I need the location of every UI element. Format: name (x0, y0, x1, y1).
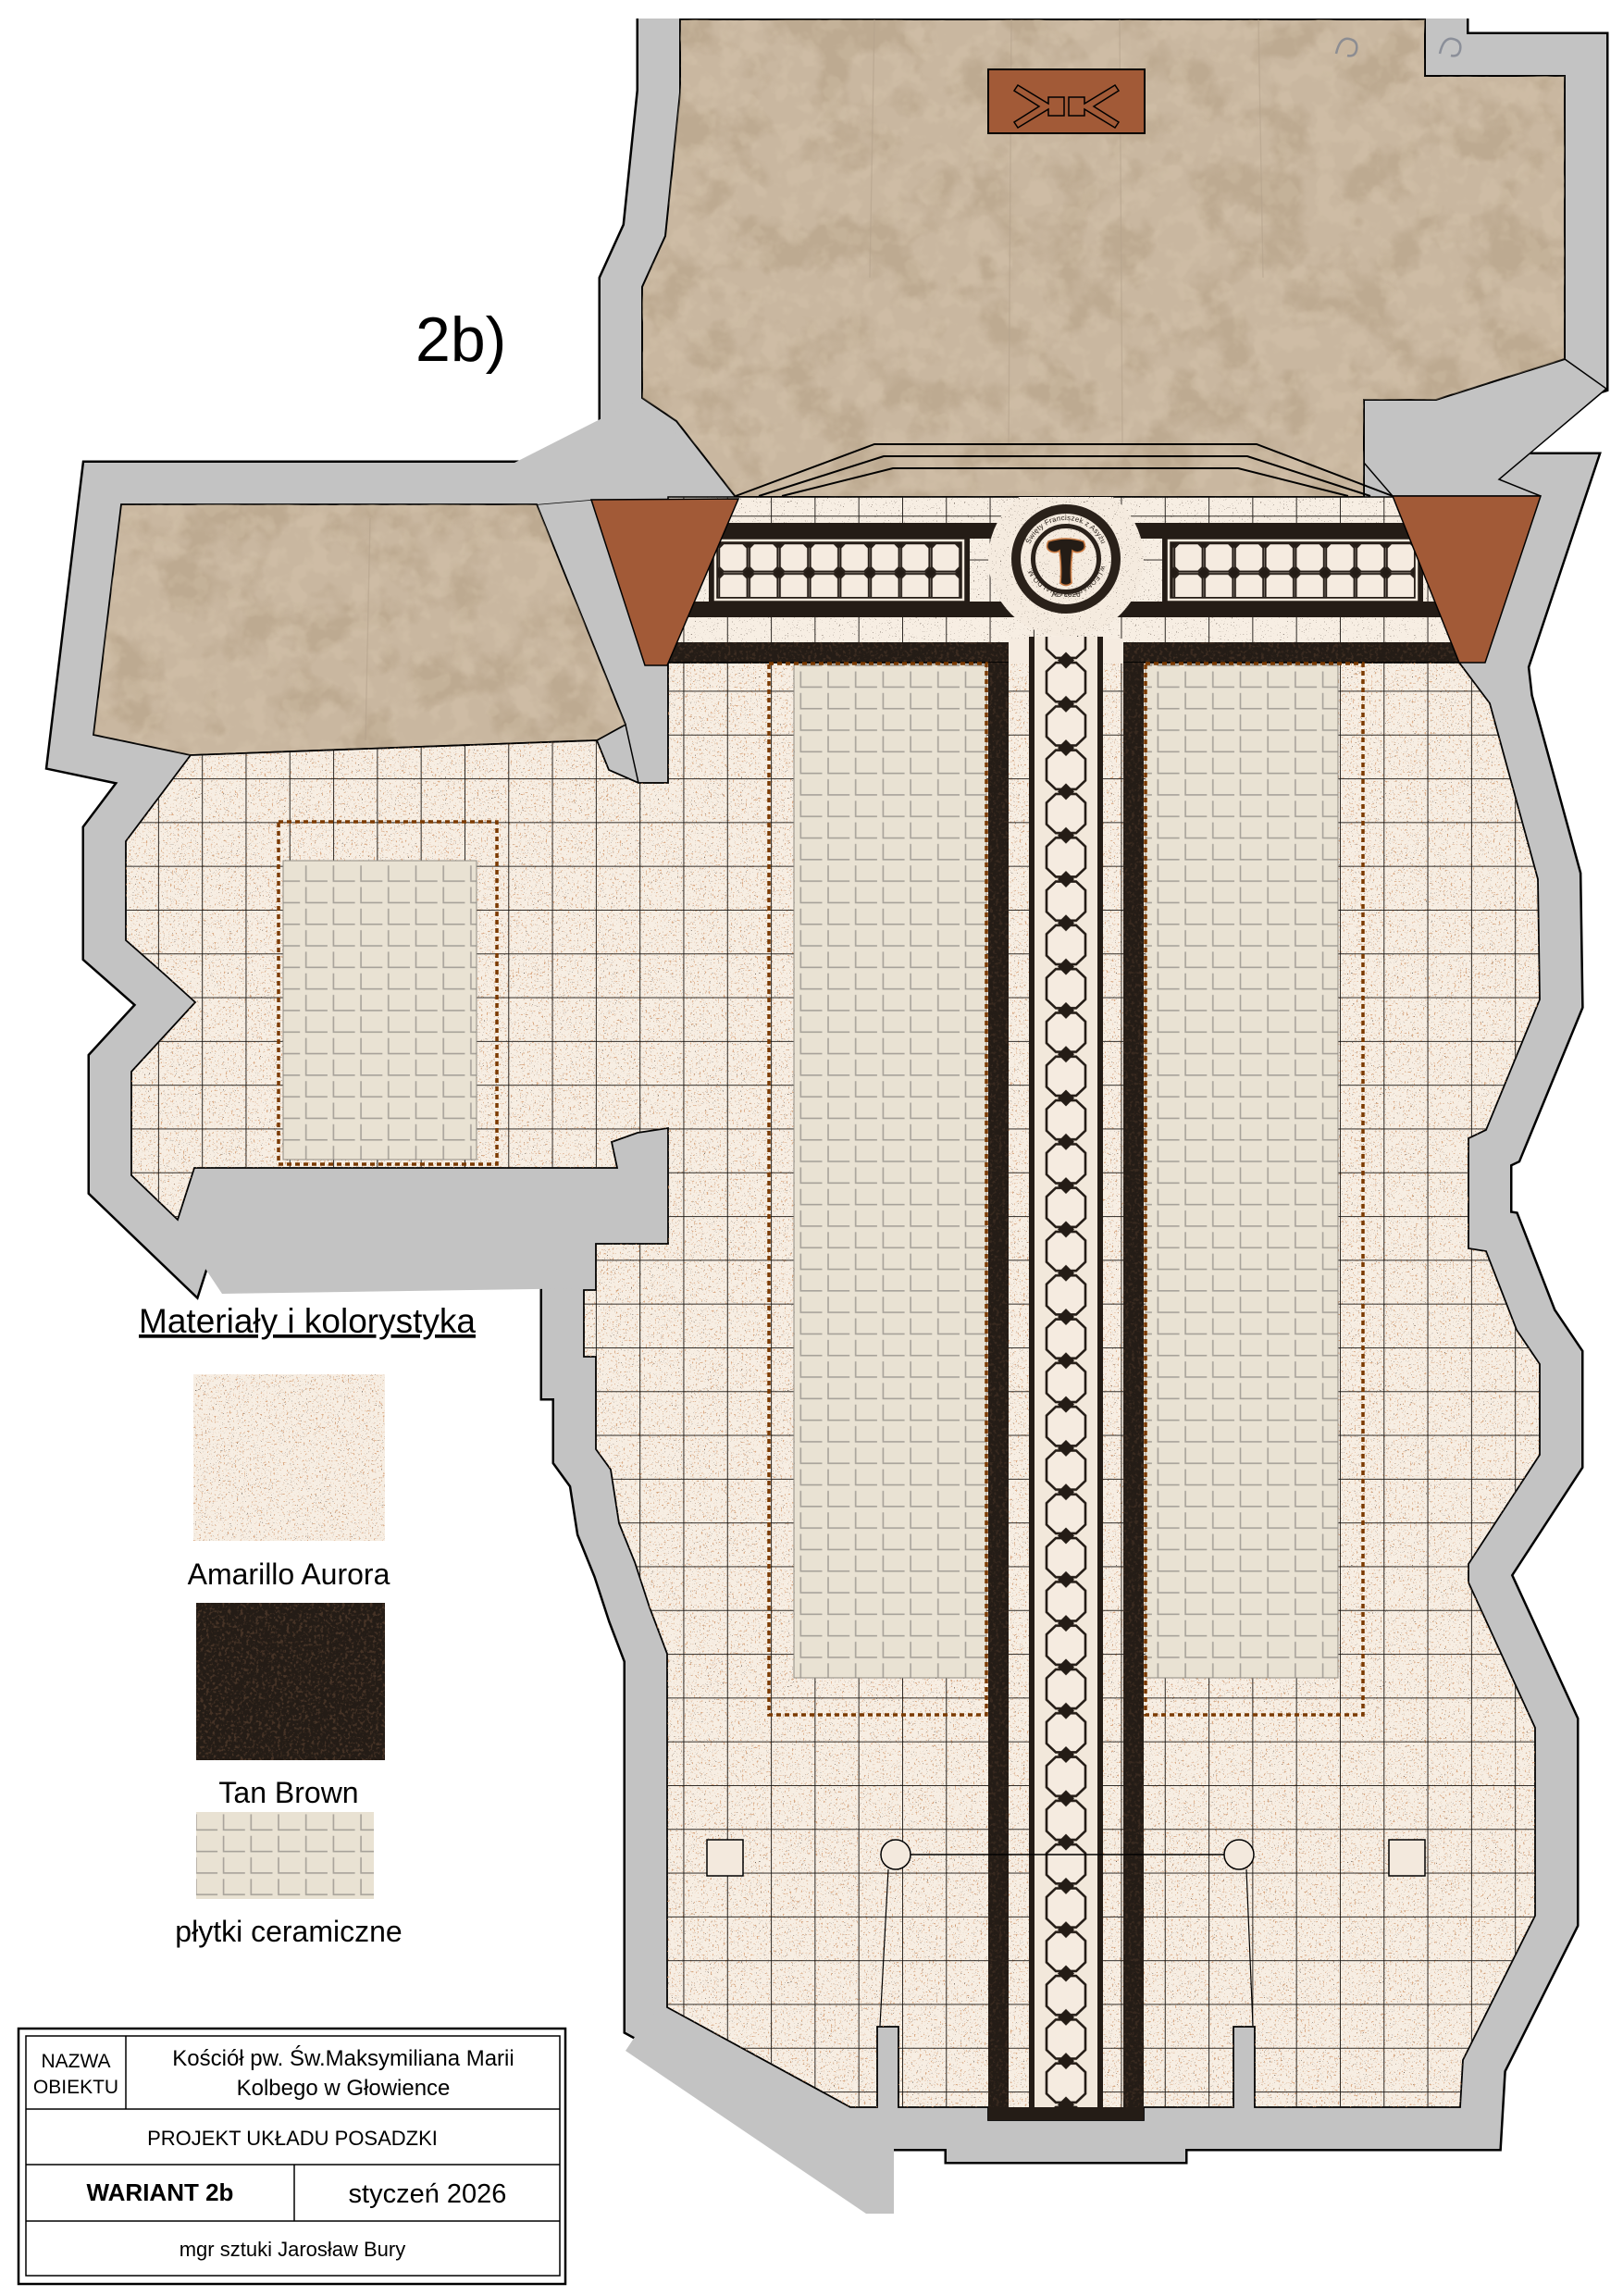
svg-text:mgr sztuki Jarosław Bury: mgr sztuki Jarosław Bury (180, 2238, 406, 2261)
svg-text:Amarillo Aurora: Amarillo Aurora (188, 1558, 390, 1591)
svg-text:Kościół pw. Św.Maksymiliana Ma: Kościół pw. Św.Maksymiliana Marii (172, 2045, 514, 2071)
svg-text:PROJEKT UKŁADU POSADZKI: PROJEKT UKŁADU POSADZKI (147, 2127, 438, 2150)
svg-text:OBIEKTU: OBIEKTU (33, 2077, 118, 2098)
svg-text:Tan Brown: Tan Brown (218, 1776, 358, 1809)
svg-text:płytki ceramiczne: płytki ceramiczne (175, 1915, 402, 1948)
svg-text:Kolbego w Głowience: Kolbego w Głowience (237, 2076, 451, 2101)
svg-text:NAZWA: NAZWA (41, 2051, 110, 2072)
svg-text:2b): 2b) (415, 304, 506, 375)
svg-text:styczeń 2026: styczeń 2026 (349, 2179, 507, 2209)
svg-text:AD 1926: AD 1926 (1051, 590, 1081, 599)
svg-text:WARIANT 2b: WARIANT 2b (87, 2178, 234, 2206)
svg-text:Materiały i kolorystyka: Materiały i kolorystyka (139, 1302, 476, 1340)
